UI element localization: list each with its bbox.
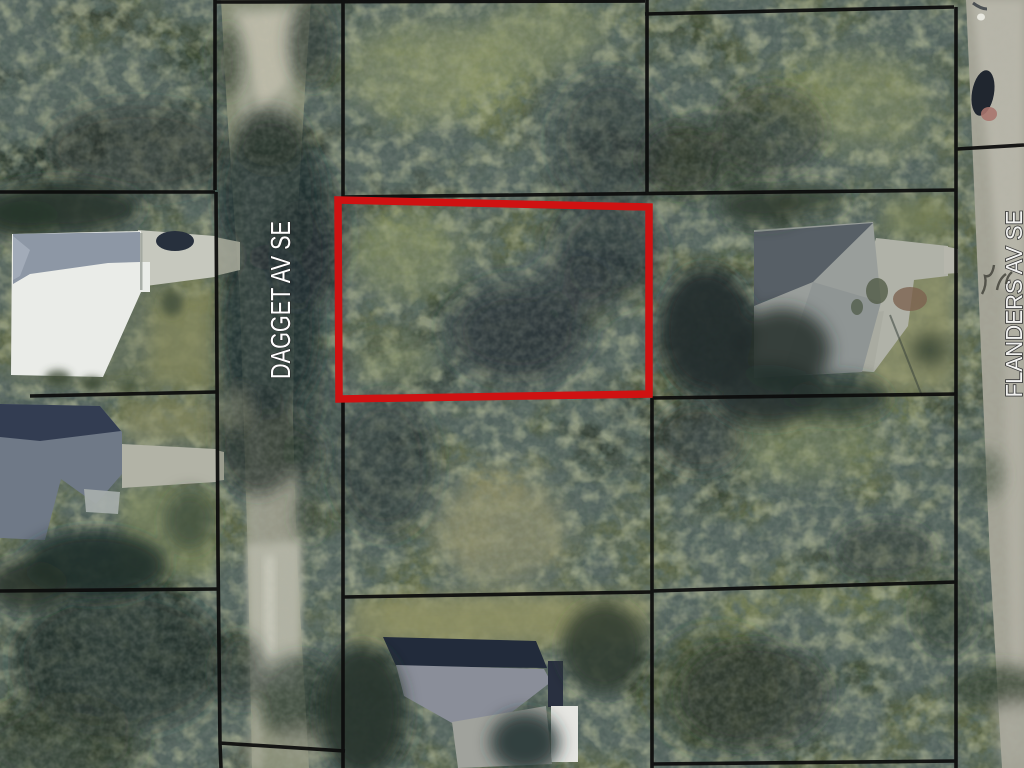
svg-text:FLANDERS AV SE: FLANDERS AV SE <box>1001 211 1024 398</box>
svg-text:DAGGET AV SE: DAGGET AV SE <box>265 221 296 379</box>
